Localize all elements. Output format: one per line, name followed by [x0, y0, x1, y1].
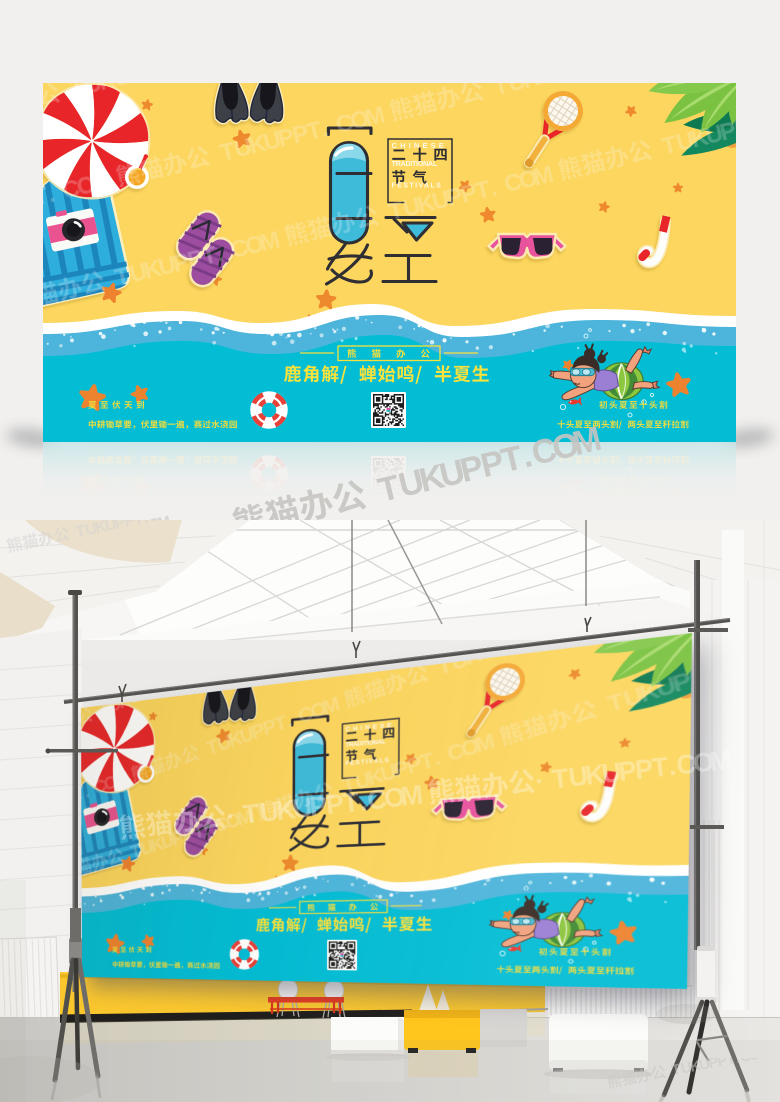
svg-text:M: M [166, 520, 183, 522]
svg-text:·: · [225, 801, 237, 832]
svg-text:M: M [708, 744, 734, 776]
svg-text:TRADITIONAL: TRADITIONAL [392, 159, 438, 168]
svg-text:M: M [399, 780, 425, 812]
svg-text:·: · [534, 766, 546, 797]
svg-text:M: M [757, 1058, 773, 1063]
